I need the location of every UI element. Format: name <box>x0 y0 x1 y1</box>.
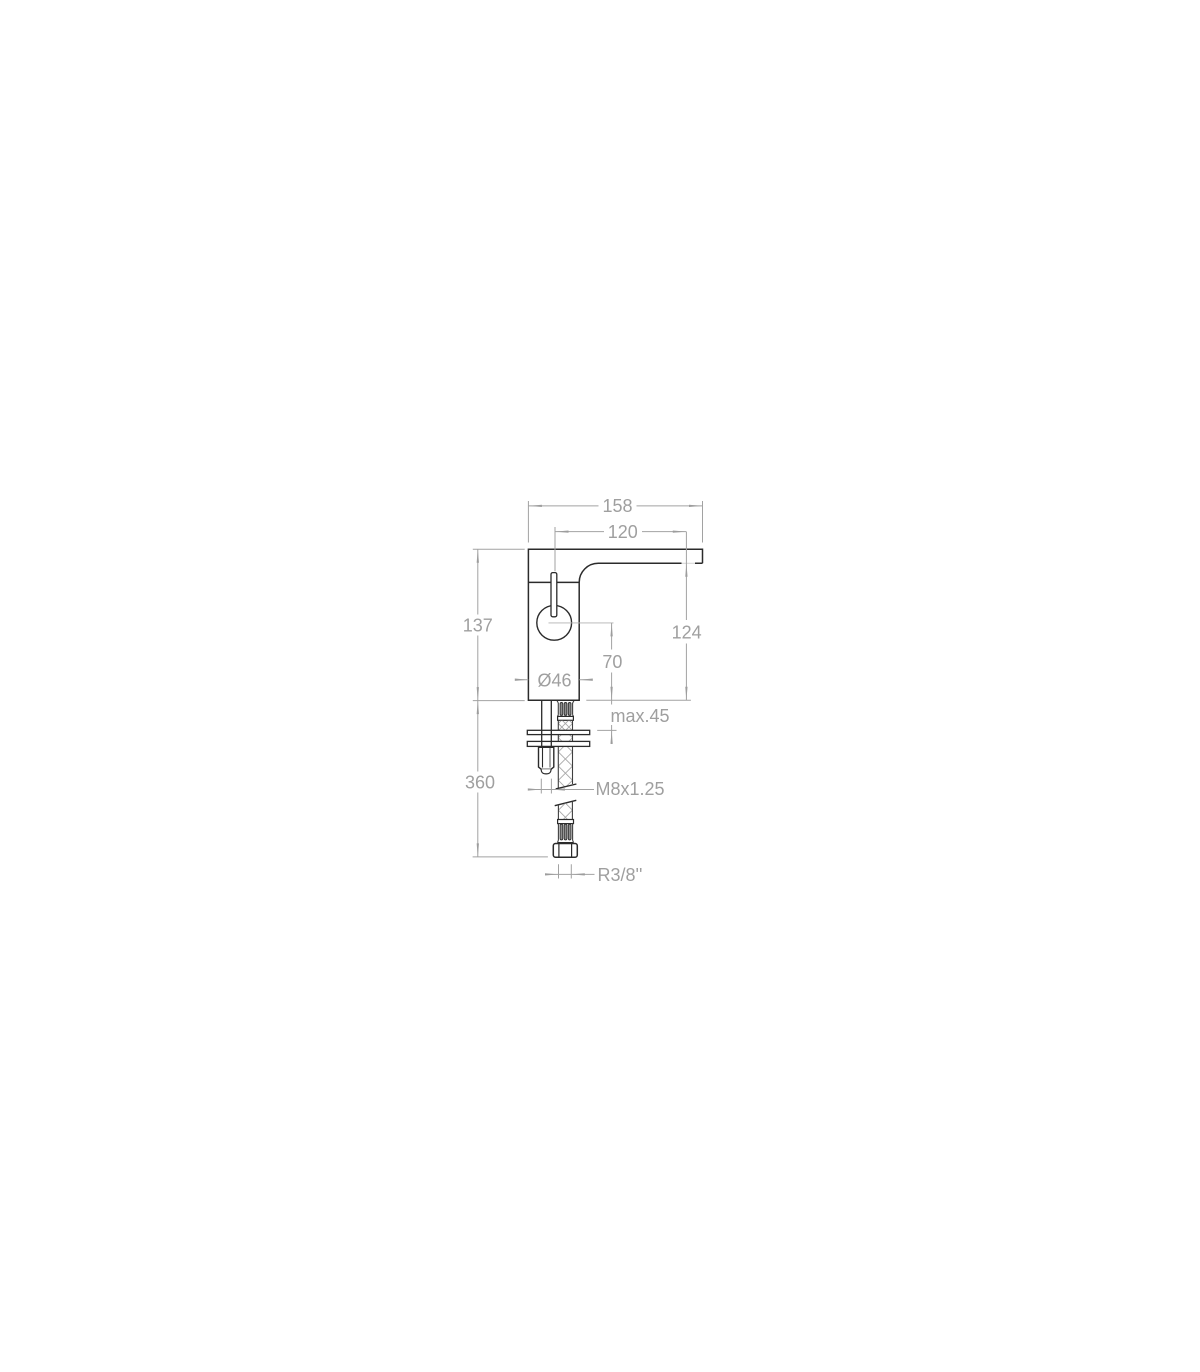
svg-text:Ø46: Ø46 <box>537 670 571 690</box>
svg-text:M8x1.25: M8x1.25 <box>596 779 665 799</box>
svg-text:137: 137 <box>463 616 493 636</box>
svg-text:max.45: max.45 <box>611 706 670 726</box>
svg-text:120: 120 <box>608 522 638 542</box>
svg-text:360: 360 <box>465 773 495 793</box>
svg-text:70: 70 <box>602 652 622 672</box>
svg-text:124: 124 <box>672 623 702 643</box>
svg-text:R3/8'': R3/8'' <box>598 865 643 885</box>
svg-text:158: 158 <box>602 496 632 516</box>
